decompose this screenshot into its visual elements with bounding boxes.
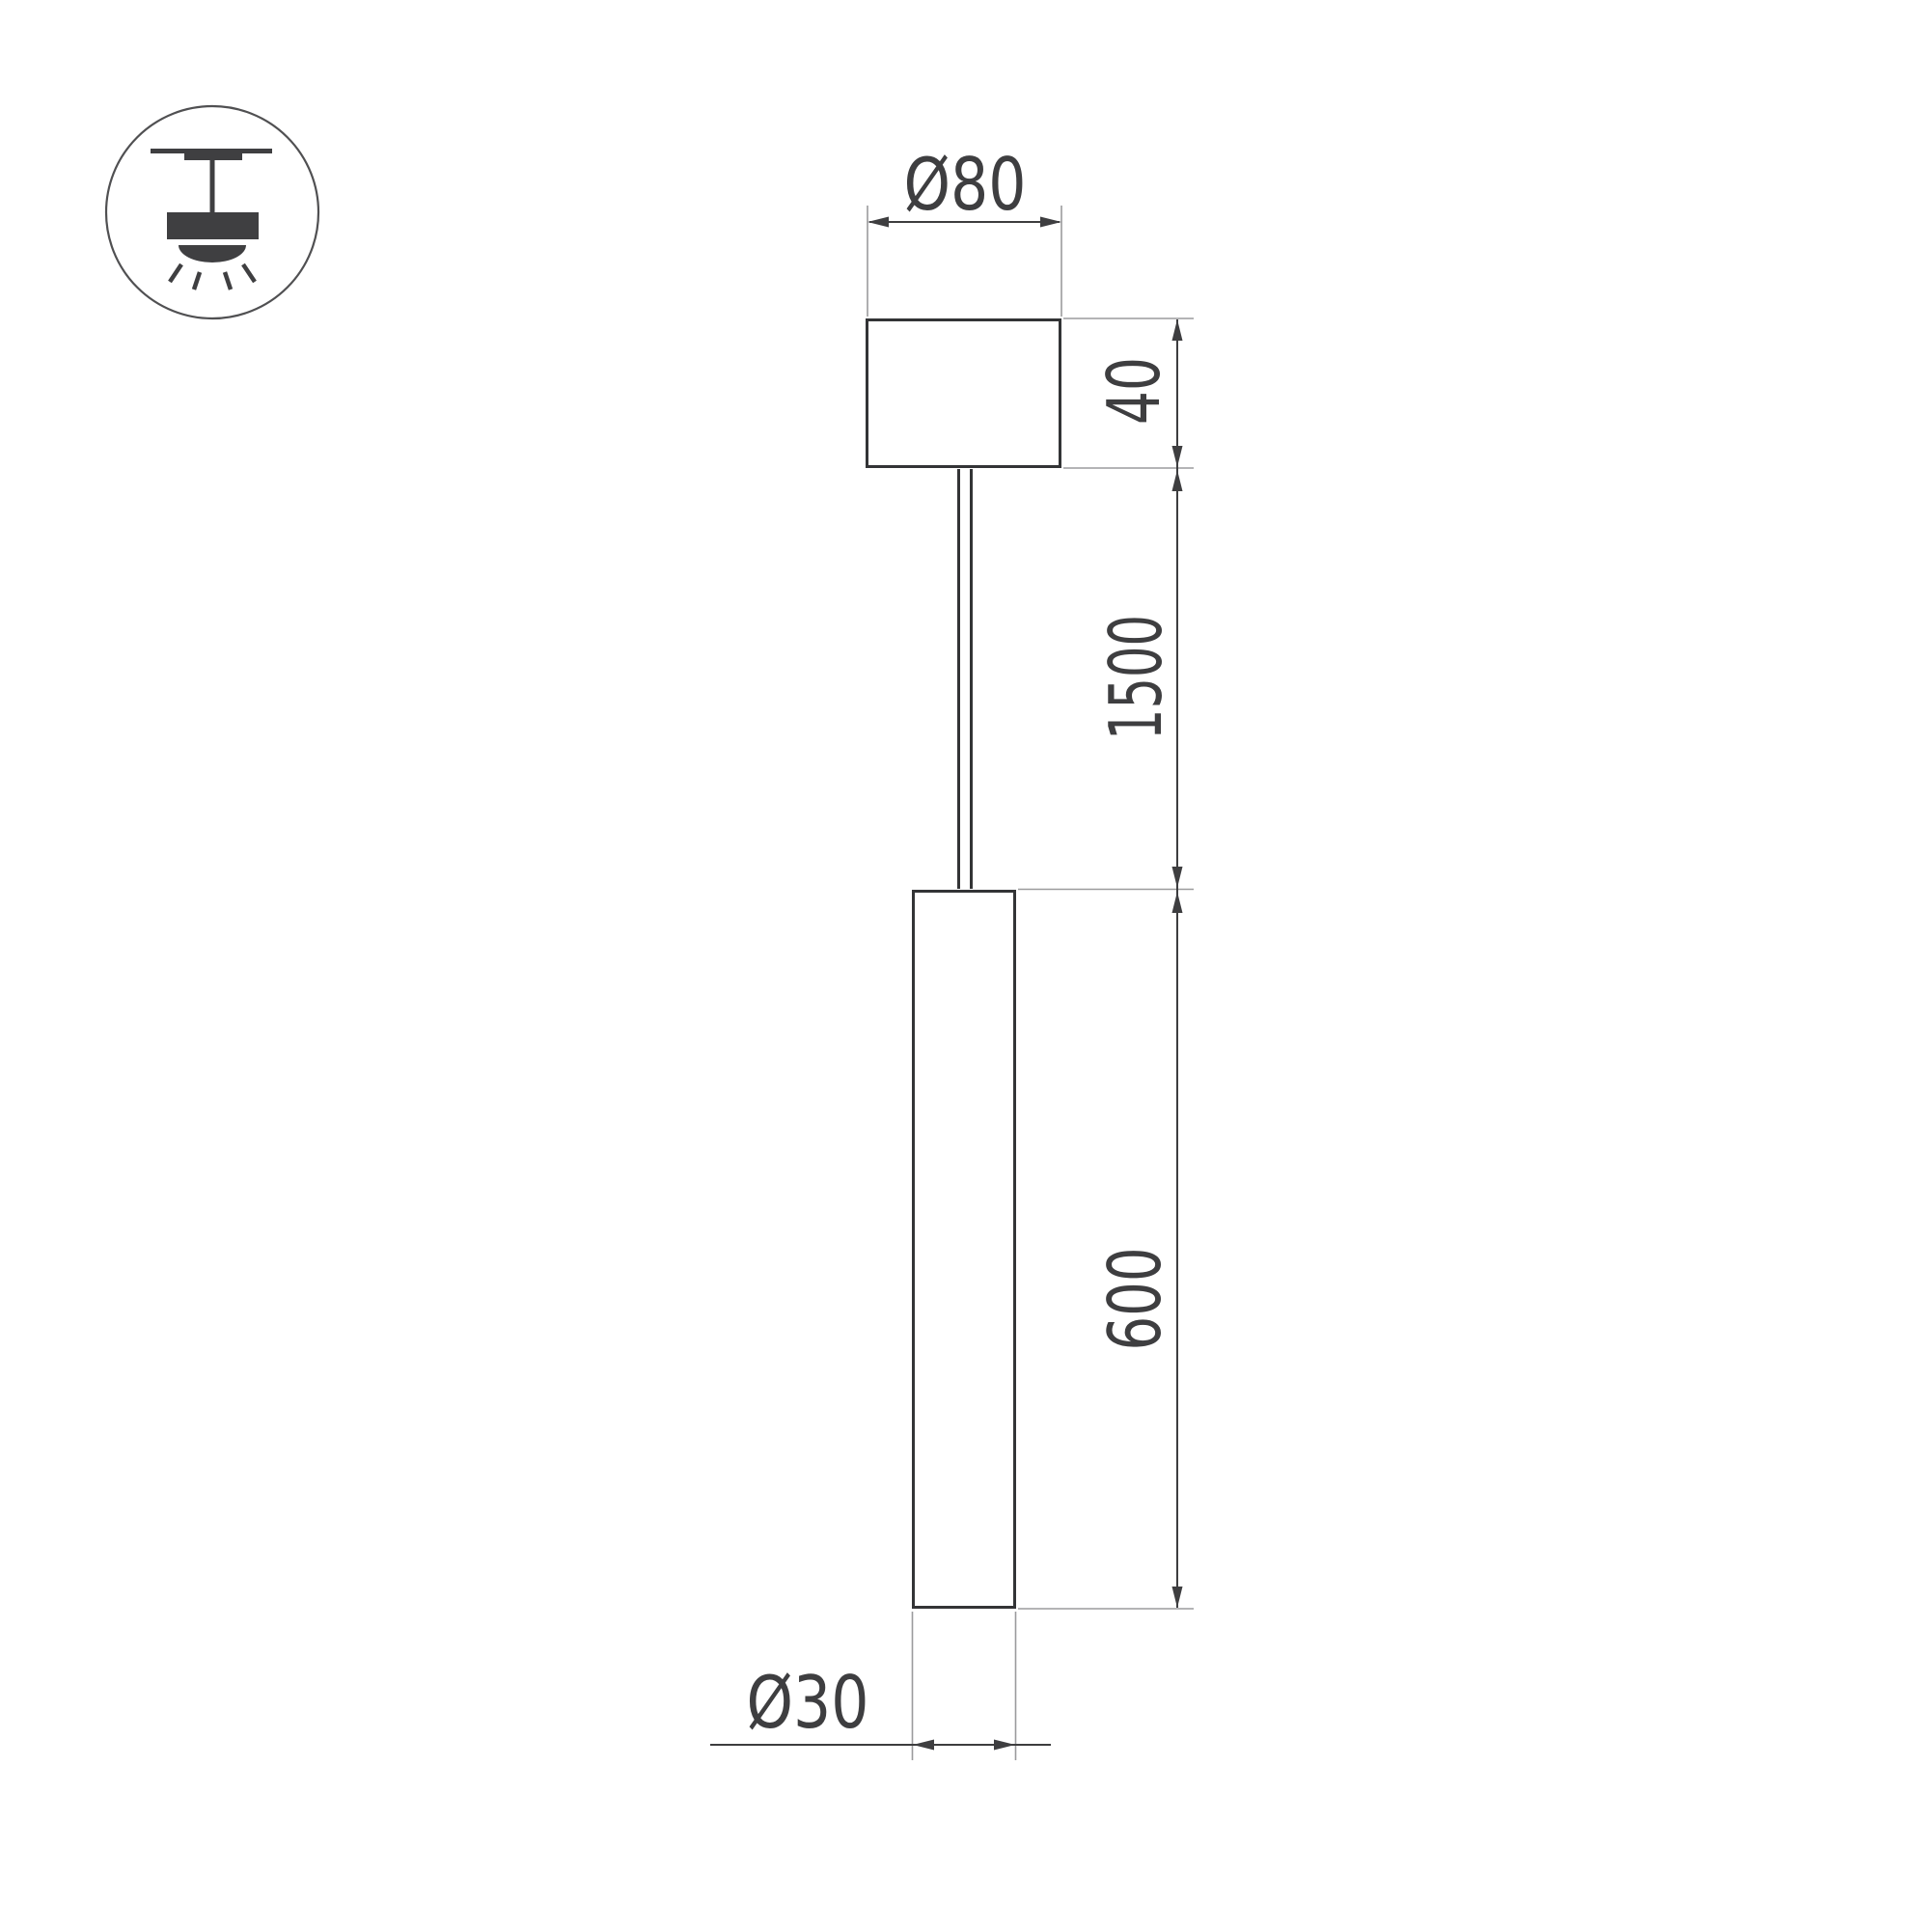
drawing-canvas: Ø80 40 1500 600 Ø30 bbox=[0, 0, 1928, 1928]
icon-light-rays bbox=[170, 264, 255, 290]
arrow-dia80-left bbox=[868, 217, 889, 228]
icon-stem bbox=[210, 160, 215, 214]
dimension-lines bbox=[710, 222, 1177, 1745]
arrow-40-top bbox=[1172, 319, 1183, 341]
arrow-dia30-right bbox=[994, 1740, 1015, 1751]
extension-lines bbox=[868, 206, 1194, 1760]
arrow-1500-bottom bbox=[1172, 867, 1183, 888]
icon-diffuser-dome bbox=[179, 245, 246, 262]
dimension-drawing: Ø80 40 1500 600 Ø30 bbox=[0, 0, 1928, 1928]
arrow-dia30-left bbox=[913, 1740, 934, 1751]
canopy-diameter-label: Ø80 bbox=[904, 142, 1027, 227]
arrow-40-bottom bbox=[1172, 446, 1183, 467]
pendant-ceiling-light-icon bbox=[106, 106, 318, 318]
tube-diameter-label: Ø30 bbox=[747, 1660, 869, 1745]
lamp-outline bbox=[868, 320, 1060, 1608]
canopy-height-label: 40 bbox=[1091, 357, 1176, 425]
icon-mount-plate bbox=[184, 152, 242, 160]
suspension-length-label: 1500 bbox=[1093, 615, 1178, 740]
arrow-600-bottom bbox=[1172, 1587, 1183, 1608]
tube-outline bbox=[914, 892, 1015, 1608]
tube-length-label: 600 bbox=[1092, 1248, 1177, 1351]
arrow-1500-top bbox=[1172, 470, 1183, 491]
icon-lamp-body bbox=[167, 212, 259, 239]
canopy-outline bbox=[868, 320, 1060, 467]
arrow-600-top bbox=[1172, 892, 1183, 913]
arrow-dia80-right bbox=[1040, 217, 1061, 228]
